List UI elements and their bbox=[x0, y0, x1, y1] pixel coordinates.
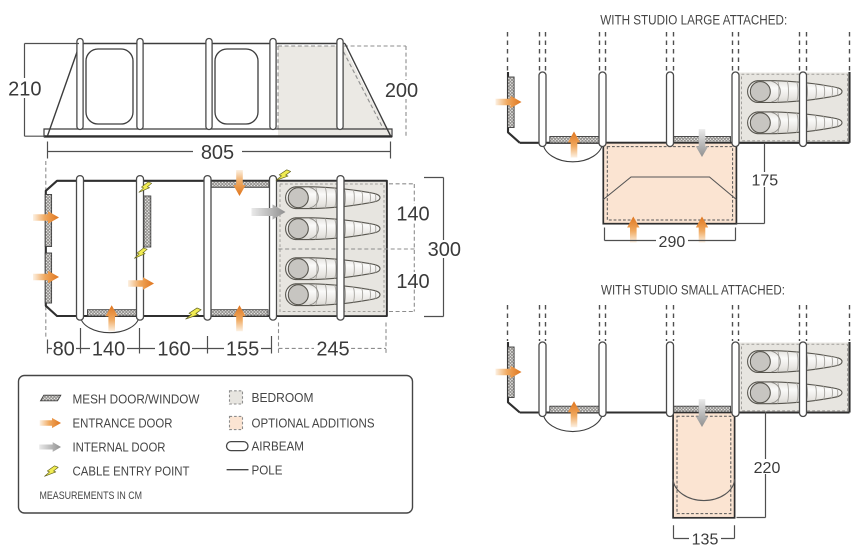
svg-text:MEASUREMENTS IN CM: MEASUREMENTS IN CM bbox=[40, 490, 143, 502]
svg-text:INTERNAL DOOR: INTERNAL DOOR bbox=[73, 440, 166, 455]
svg-text:300: 300 bbox=[428, 239, 461, 261]
svg-text:155: 155 bbox=[226, 339, 259, 361]
svg-text:ENTRANCE DOOR: ENTRANCE DOOR bbox=[73, 416, 173, 431]
svg-text:140: 140 bbox=[92, 339, 125, 361]
svg-text:160: 160 bbox=[157, 339, 190, 361]
svg-text:200: 200 bbox=[385, 80, 418, 102]
svg-text:805: 805 bbox=[201, 142, 234, 164]
svg-text:140: 140 bbox=[396, 204, 429, 226]
svg-text:210: 210 bbox=[8, 79, 41, 101]
svg-text:MESH DOOR/WINDOW: MESH DOOR/WINDOW bbox=[73, 391, 201, 406]
svg-text:175: 175 bbox=[751, 173, 778, 190]
svg-text:CABLE ENTRY POINT: CABLE ENTRY POINT bbox=[73, 464, 190, 479]
svg-text:BEDROOM: BEDROOM bbox=[252, 390, 314, 405]
svg-text:80: 80 bbox=[53, 339, 75, 361]
svg-text:WITH STUDIO SMALL ATTACHED:: WITH STUDIO SMALL ATTACHED: bbox=[601, 282, 785, 297]
svg-text:220: 220 bbox=[754, 460, 781, 477]
svg-text:WITH STUDIO LARGE ATTACHED:: WITH STUDIO LARGE ATTACHED: bbox=[600, 12, 787, 27]
svg-text:245: 245 bbox=[316, 339, 349, 361]
svg-text:135: 135 bbox=[692, 531, 719, 548]
svg-text:AIRBEAM: AIRBEAM bbox=[252, 439, 305, 454]
svg-text:OPTIONAL ADDITIONS: OPTIONAL ADDITIONS bbox=[252, 416, 375, 431]
svg-text:140: 140 bbox=[396, 271, 429, 293]
svg-text:POLE: POLE bbox=[252, 463, 283, 478]
svg-text:290: 290 bbox=[659, 234, 686, 251]
